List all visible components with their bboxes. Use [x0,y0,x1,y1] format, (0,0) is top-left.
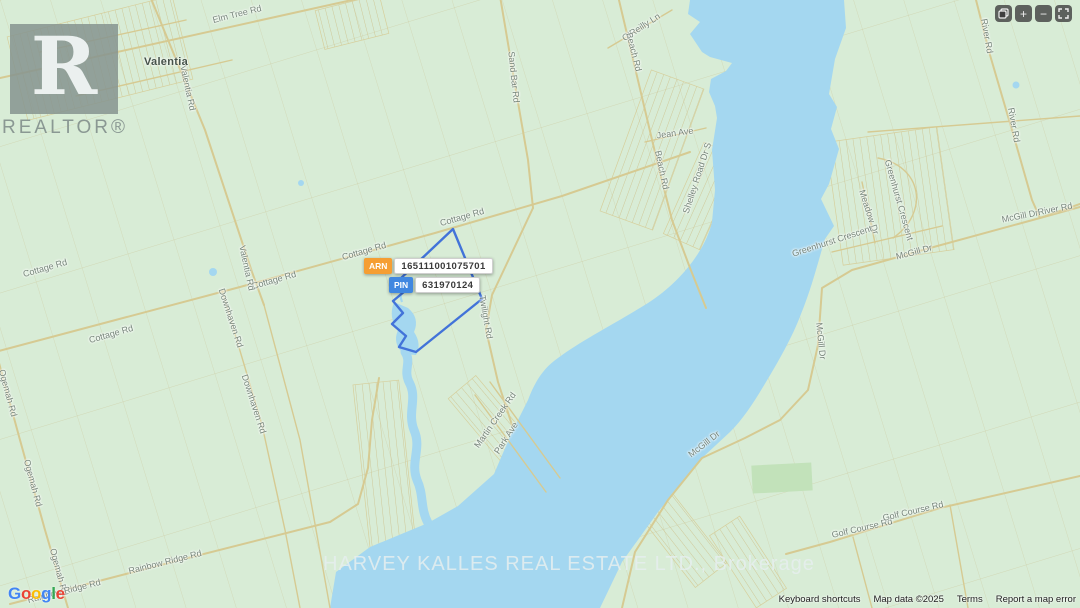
fullscreen-button[interactable] [1055,5,1072,22]
pin-badge: PIN [389,277,413,293]
map-viewport[interactable]: Elm Tree RdValentia RdSand Bar RdO'Reill… [0,0,1080,608]
google-logo-letter: o [31,584,41,603]
google-logo[interactable]: Google [8,584,65,604]
terms-link[interactable]: Terms [957,594,983,605]
zoom-out-button[interactable]: − [1035,5,1052,22]
google-logo-letter: o [21,584,31,603]
arn-value: 165111001075701 [394,258,492,274]
attribution-bar: Keyboard shortcuts Map data ©2025 Terms … [779,594,1076,605]
report-map-error-link[interactable]: Report a map error [996,594,1076,605]
google-logo-letter: G [8,584,21,603]
pin-info-bubble: PIN 631970124 [389,277,480,293]
realtor-r-glyph: R [31,26,97,106]
arn-badge: ARN [364,258,392,274]
park-area [751,462,812,493]
map-data-copyright: Map data ©2025 [873,594,943,605]
fullscreen-icon [1058,8,1069,19]
google-logo-letter: g [41,584,51,603]
map-controls: + − [995,5,1072,22]
map-type-button[interactable] [995,5,1012,22]
keyboard-shortcuts-link[interactable]: Keyboard shortcuts [779,594,861,605]
pin-value: 631970124 [415,277,480,293]
arn-info-bubble: ARN 165111001075701 [364,258,493,274]
map-canvas[interactable] [0,0,1080,608]
google-logo-letter: e [56,584,65,603]
realtor-watermark: R REALTOR® [0,24,132,139]
brokerage-watermark: HARVEY KALLES REAL ESTATE LTD., Brokerag… [323,553,815,576]
realtor-logo-text: REALTOR® [2,117,132,139]
zoom-in-button[interactable]: + [1015,5,1032,22]
realtor-logo-icon: R [10,24,118,114]
layers-icon [998,8,1009,19]
